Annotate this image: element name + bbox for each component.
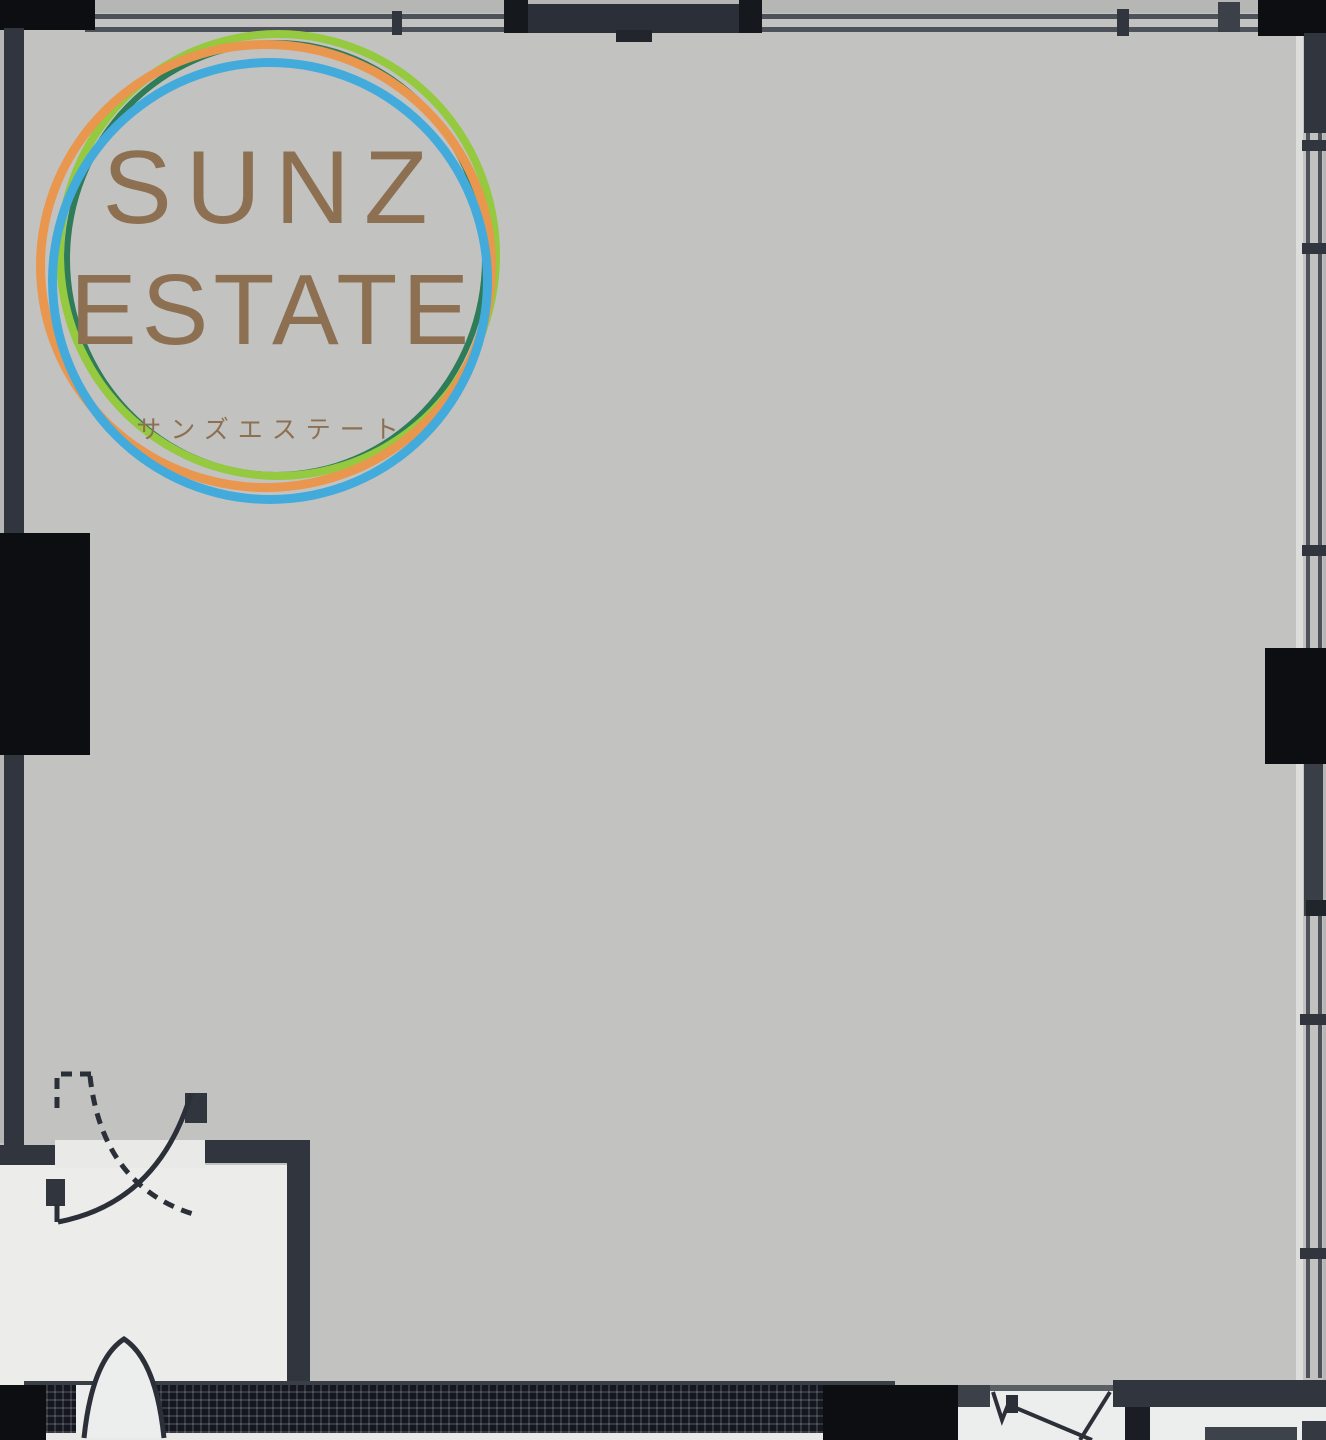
entrance-door-leaf-dashed-square: [57, 1074, 92, 1108]
balcony-door-pivot-block: [1006, 1395, 1018, 1413]
vestibule-exterior-door-swing: [84, 1339, 164, 1438]
logo-title-line2: ESTATE: [36, 260, 508, 360]
sunz-estate-logo: SUNZ ESTATE サンズエステート: [36, 28, 508, 510]
balcony-door-leaf-right: [1080, 1392, 1110, 1440]
entrance-door-swing-arc-dashed: [90, 1076, 193, 1214]
logo-subtext-japanese: サンズエステート: [36, 410, 508, 446]
floor-plan-canvas: SUNZ ESTATE サンズエステート: [0, 0, 1326, 1440]
balcony-door-leaf-mid: [1016, 1408, 1092, 1440]
logo-title-line1: SUNZ: [36, 136, 508, 240]
